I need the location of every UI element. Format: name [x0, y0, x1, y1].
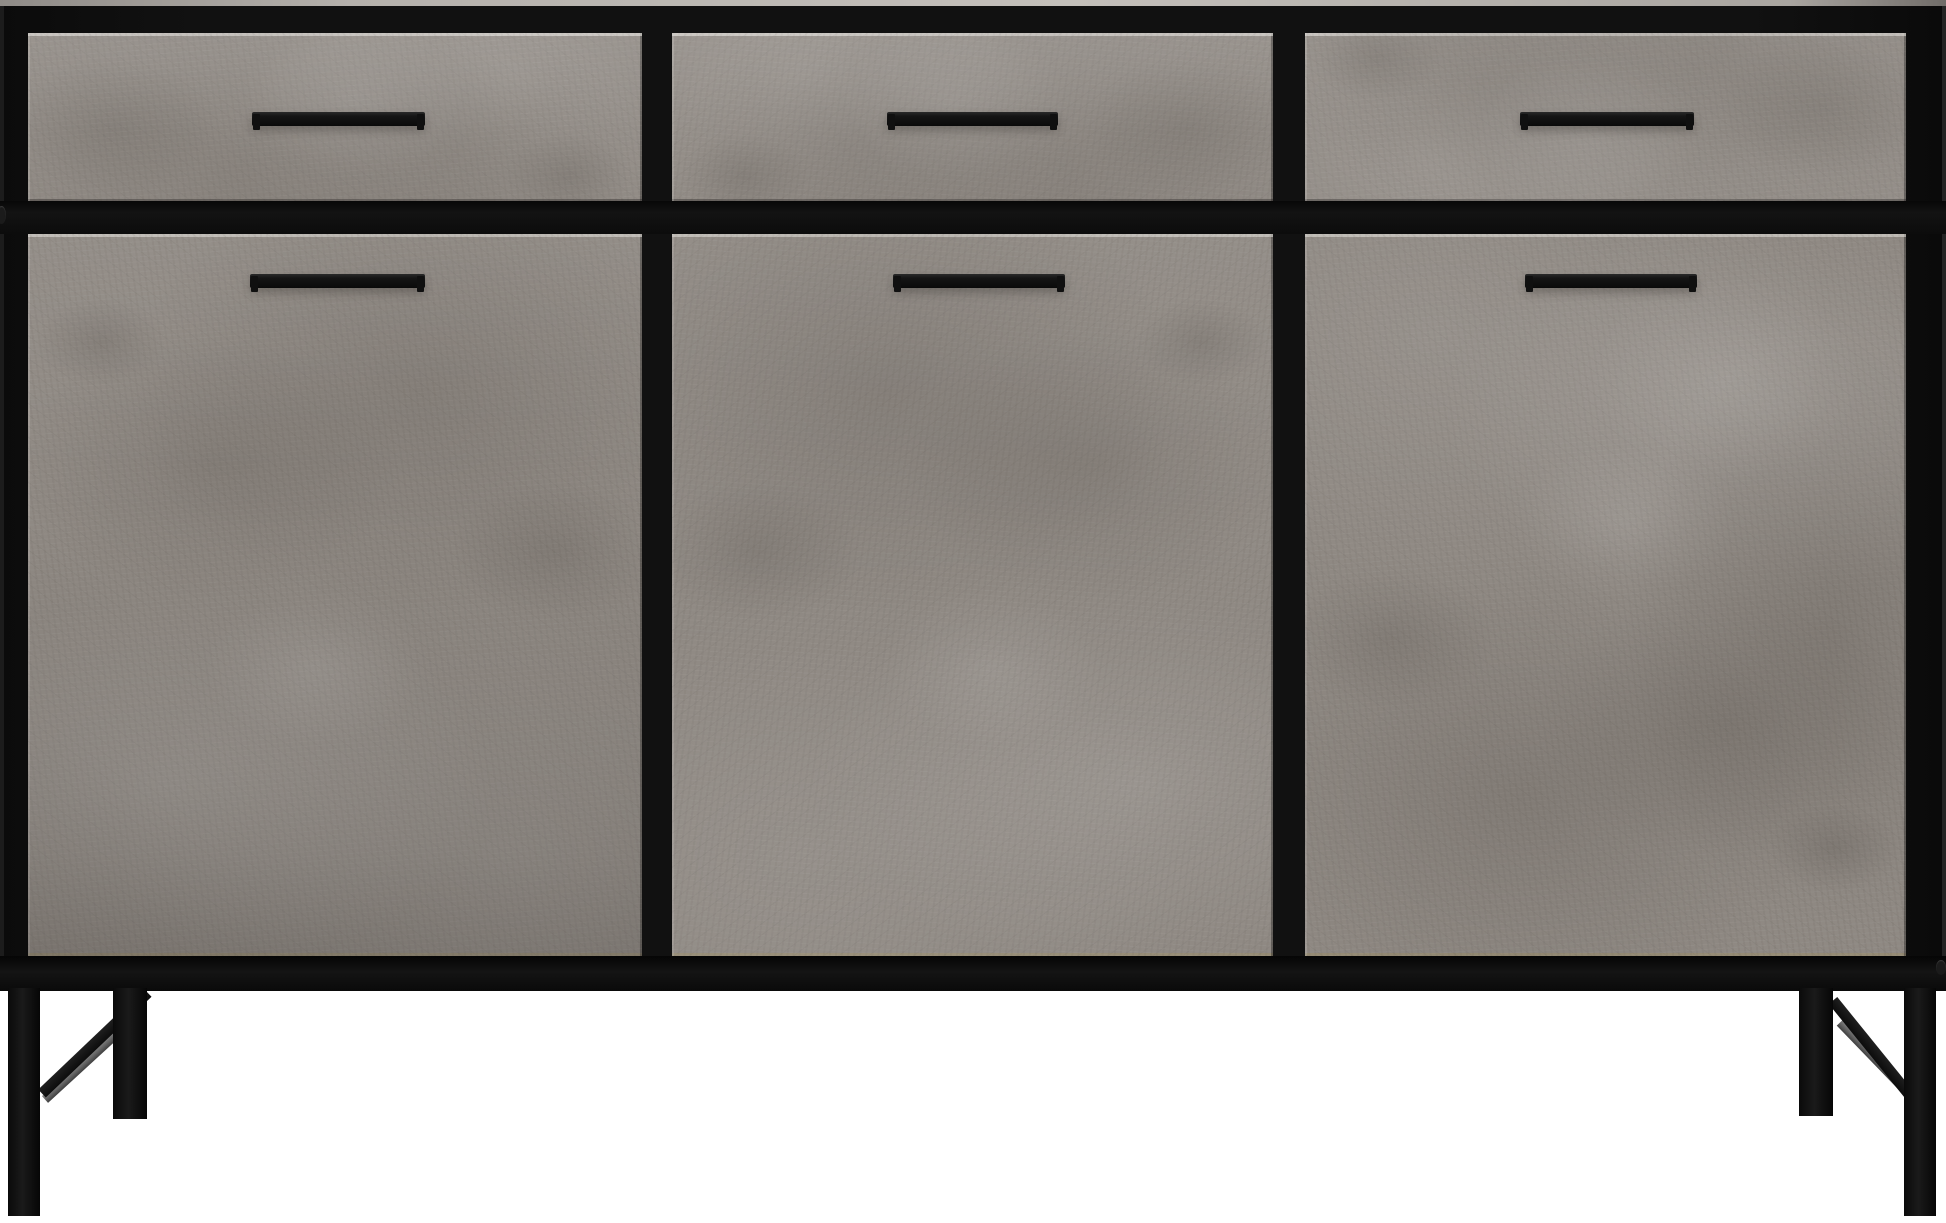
- door-handle-center: [893, 274, 1065, 288]
- door-left: [28, 234, 642, 956]
- concrete-texture: [1305, 234, 1906, 956]
- leg-front-left: [8, 988, 40, 1216]
- concrete-texture: [28, 234, 642, 956]
- cabinet-frame: [0, 0, 1946, 991]
- drawer-handle-right: [1520, 112, 1694, 126]
- door-handle-right: [1525, 274, 1697, 288]
- drawer-handle-center: [887, 112, 1058, 126]
- door-center: [672, 234, 1273, 956]
- drawer-handle-left: [252, 112, 425, 126]
- door-handle-left: [250, 274, 425, 288]
- leg-brace-right: [1829, 997, 1914, 1099]
- concrete-texture: [672, 234, 1273, 956]
- leg-rear-right: [1799, 988, 1833, 1116]
- frame-bottom-rail: [0, 956, 1946, 991]
- product-photo: [0, 0, 1946, 1223]
- leg-front-right: [1904, 988, 1936, 1216]
- leg-rear-left: [113, 988, 147, 1119]
- frame-bolt-right: [1936, 960, 1946, 975]
- frame-mid-rail: [0, 201, 1946, 234]
- door-right: [1305, 234, 1906, 956]
- cabinet-top-surface-edge: [0, 0, 1946, 6]
